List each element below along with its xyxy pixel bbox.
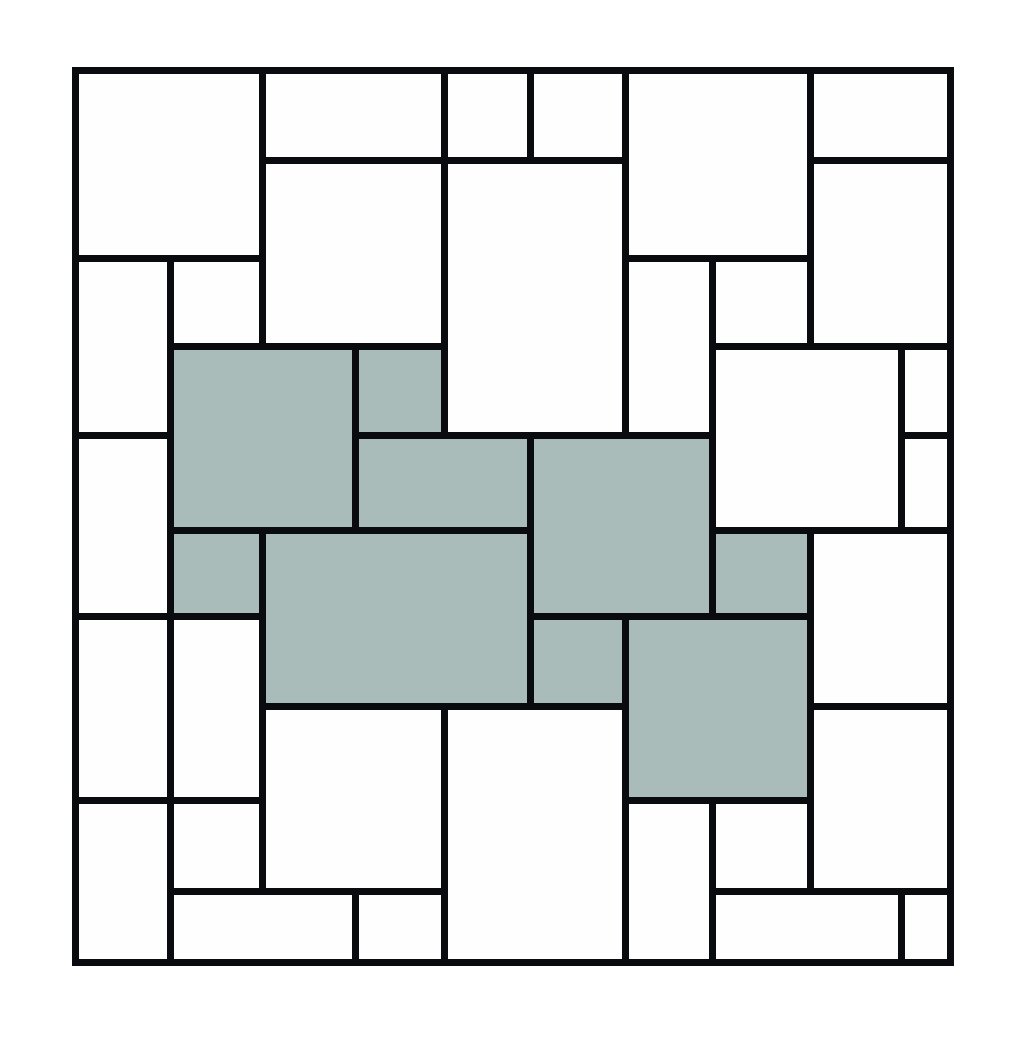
white-tile [174, 620, 259, 797]
figure-canvas [0, 0, 1024, 1038]
shaded-tile [359, 350, 441, 432]
white-tile [716, 262, 807, 343]
white-tile [905, 895, 947, 959]
white-tile [79, 620, 167, 797]
white-tile [716, 804, 807, 888]
white-tile [174, 895, 352, 959]
white-tile [534, 74, 622, 157]
white-tile [716, 895, 898, 959]
white-tile [629, 804, 709, 959]
white-tile [79, 262, 167, 432]
white-tile [448, 710, 622, 959]
white-tile [814, 74, 947, 157]
white-tile [629, 262, 709, 432]
white-tile [79, 439, 167, 613]
shaded-tile [716, 534, 807, 613]
shaded-tile [534, 439, 709, 613]
white-tile [448, 74, 527, 157]
white-tile [174, 262, 259, 343]
shaded-tile [359, 439, 527, 527]
white-tile [716, 350, 898, 527]
white-tile [629, 74, 807, 255]
white-tile [266, 74, 441, 157]
shaded-tile [629, 620, 807, 797]
shaded-tile [534, 620, 622, 703]
white-tile [359, 895, 441, 959]
white-tile [266, 164, 441, 343]
white-tile [814, 164, 947, 343]
white-tile [448, 164, 622, 432]
tiling-board [72, 67, 954, 966]
white-tile [905, 350, 947, 432]
white-tile [814, 710, 947, 888]
shaded-tile [174, 534, 259, 613]
white-tile [266, 710, 441, 888]
white-tile [814, 534, 947, 703]
white-tile [174, 804, 259, 888]
white-tile [79, 804, 167, 959]
white-tile [79, 74, 259, 255]
white-tile [905, 439, 947, 527]
shaded-tile [266, 534, 527, 703]
shaded-tile [174, 350, 352, 527]
